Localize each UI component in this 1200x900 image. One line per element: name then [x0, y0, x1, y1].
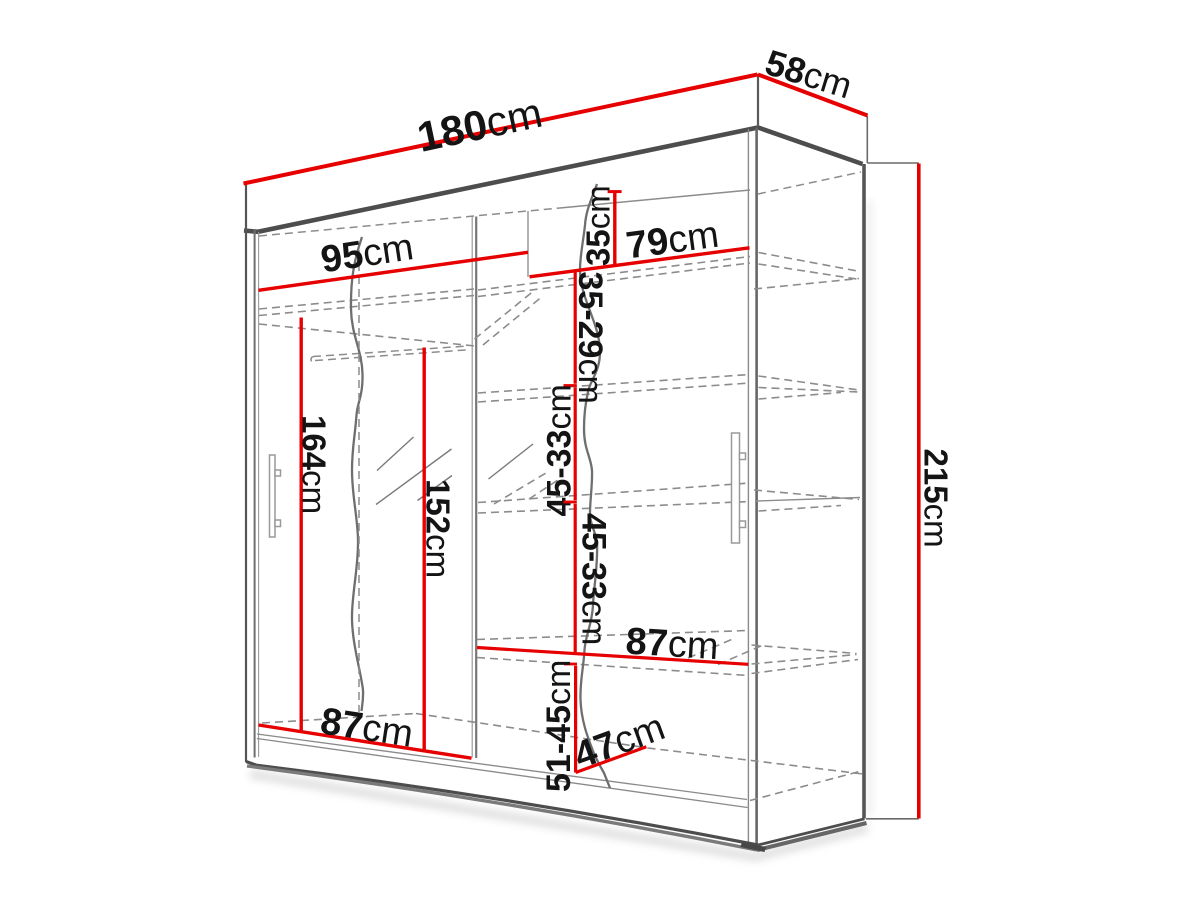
svg-text:51-45cm: 51-45cm: [540, 660, 578, 792]
svg-text:35-29cm: 35-29cm: [571, 272, 609, 404]
svg-text:215cm: 215cm: [918, 449, 955, 548]
svg-text:45-33cm: 45-33cm: [575, 513, 613, 645]
svg-text:45-33cm: 45-33cm: [541, 384, 579, 516]
svg-text:35cm: 35cm: [580, 185, 617, 266]
svg-text:87cm: 87cm: [624, 621, 719, 669]
svg-text:164cm: 164cm: [296, 415, 333, 514]
svg-text:152cm: 152cm: [420, 479, 457, 578]
